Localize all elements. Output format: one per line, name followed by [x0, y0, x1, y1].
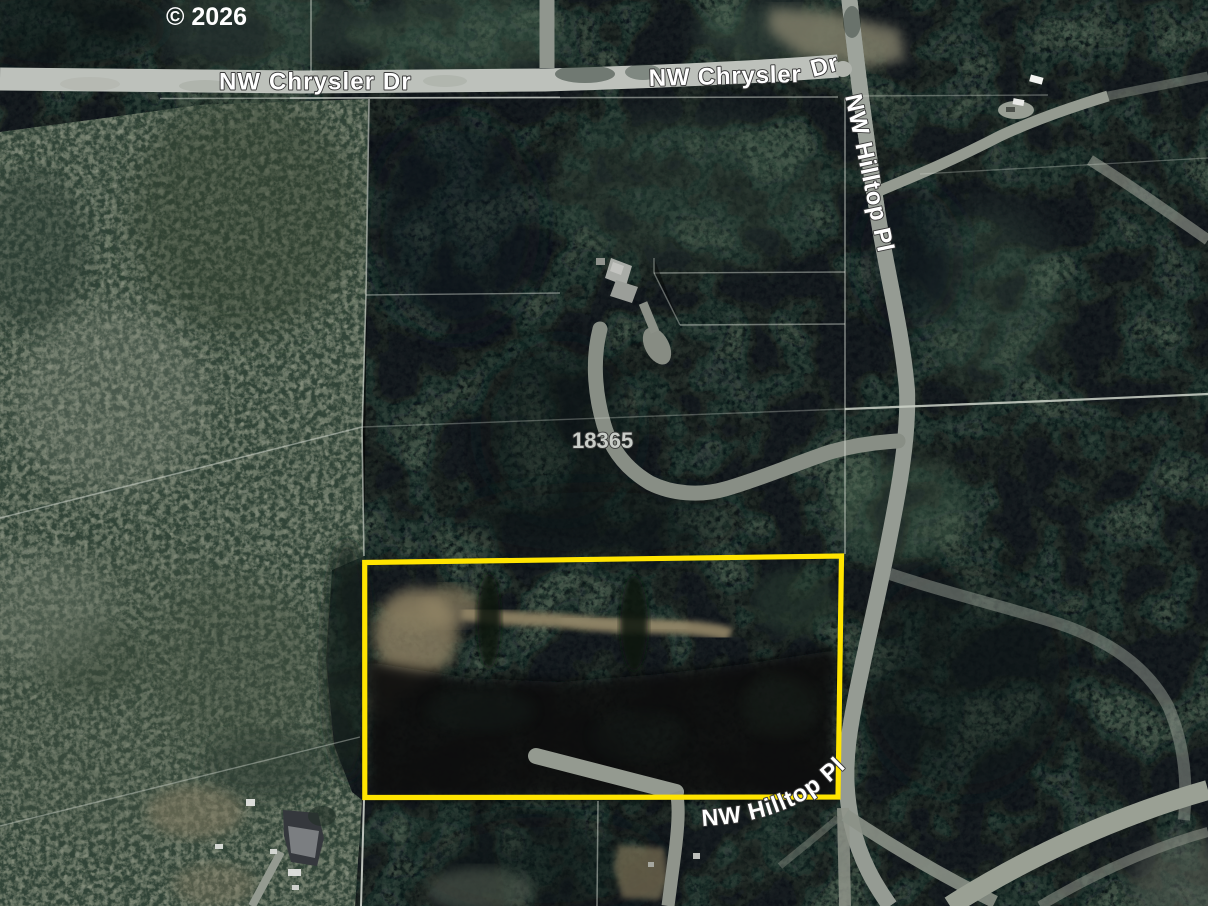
svg-text:NW Chrysler Dr: NW Chrysler Dr [219, 69, 412, 96]
svg-text:18365: 18365 [572, 428, 633, 453]
svg-text:© 2026: © 2026 [166, 3, 247, 31]
svg-text:NW Chrysler: NW Chrysler [648, 61, 801, 92]
